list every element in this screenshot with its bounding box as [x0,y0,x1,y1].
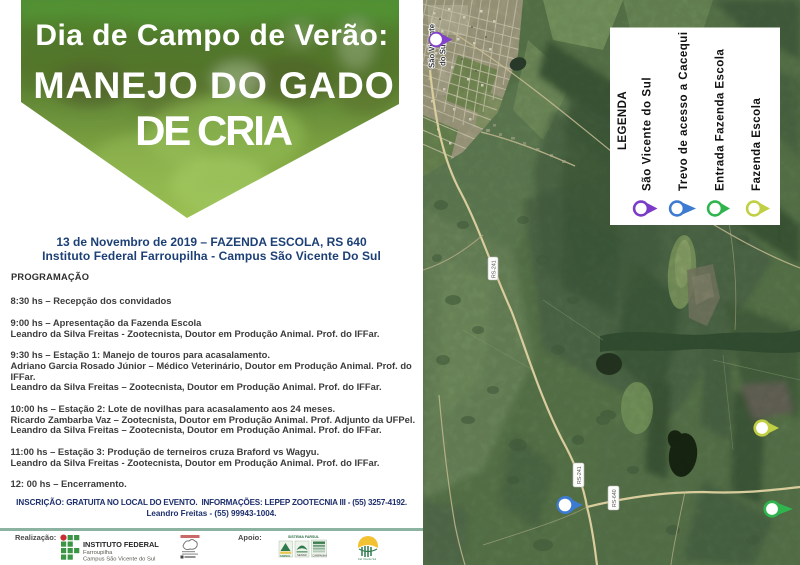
svg-text:INSTITUTO FEDERAL: INSTITUTO FEDERAL [83,540,159,549]
svg-text:RS-241: RS-241 [577,466,583,484]
svg-text:SENAR: SENAR [297,553,307,557]
svg-text:CAMPANHA: CAMPANHA [313,553,328,557]
svg-text:Farroupilha: Farroupilha [83,550,113,556]
svg-text:RS-241: RS-241 [492,260,498,278]
svg-text:SISTEMA FARSUL: SISTEMA FARSUL [288,535,320,539]
svg-text:Faz Vicente Sul: Faz Vicente Sul [358,557,377,561]
svg-text:Trevo de acesso a Cacequi: Trevo de acesso a Cacequi [678,31,690,191]
svg-text:RS-640: RS-640 [612,489,618,507]
svg-text:Entrada Fazenda Escola: Entrada Fazenda Escola [715,49,727,191]
svg-text:FARSUL: FARSUL [280,554,291,558]
svg-text:LEGENDA: LEGENDA [617,91,629,150]
svg-text:Fazenda Escola: Fazenda Escola [751,98,763,191]
svg-text:Campus São Vicente do Sul: Campus São Vicente do Sul [83,557,155,563]
svg-text:São Vicente do Sul: São Vicente do Sul [642,77,654,191]
